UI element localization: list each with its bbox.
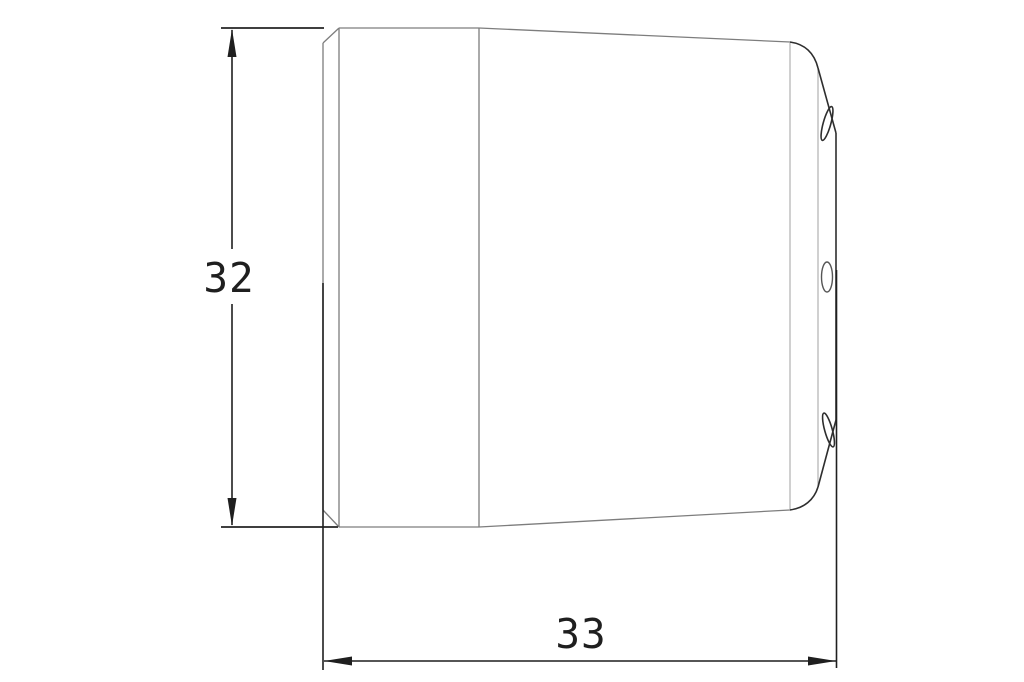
back-top-corner-curve xyxy=(790,42,818,68)
width-arrow-right xyxy=(808,657,836,666)
front-top-chamfer xyxy=(323,28,339,43)
width-dimension: 33 xyxy=(323,270,837,670)
back-bottom-slant-edge xyxy=(818,420,836,487)
technical-drawing: 32 33 xyxy=(0,0,1024,682)
part-back-tangent-edges xyxy=(790,42,818,510)
front-bottom-chamfer xyxy=(323,510,339,527)
width-dim-label: 33 xyxy=(555,610,606,658)
width-arrow-left xyxy=(324,657,352,666)
center-hole xyxy=(822,262,833,292)
height-dimension: 32 xyxy=(203,28,338,527)
mounting-slot-bottom xyxy=(820,412,837,448)
drawing-canvas: 32 33 xyxy=(0,0,1024,682)
part-back-outline xyxy=(790,42,837,510)
back-top-slant-edge xyxy=(818,68,836,133)
body-taper-top-edge xyxy=(479,28,790,42)
height-arrow-down xyxy=(228,498,237,526)
body-taper-bottom-edge xyxy=(479,510,790,527)
part-side-view xyxy=(323,28,837,527)
back-bottom-corner-curve xyxy=(790,487,818,510)
height-dim-label: 32 xyxy=(203,254,254,302)
height-arrow-up xyxy=(228,29,237,57)
part-front-section xyxy=(323,28,790,527)
